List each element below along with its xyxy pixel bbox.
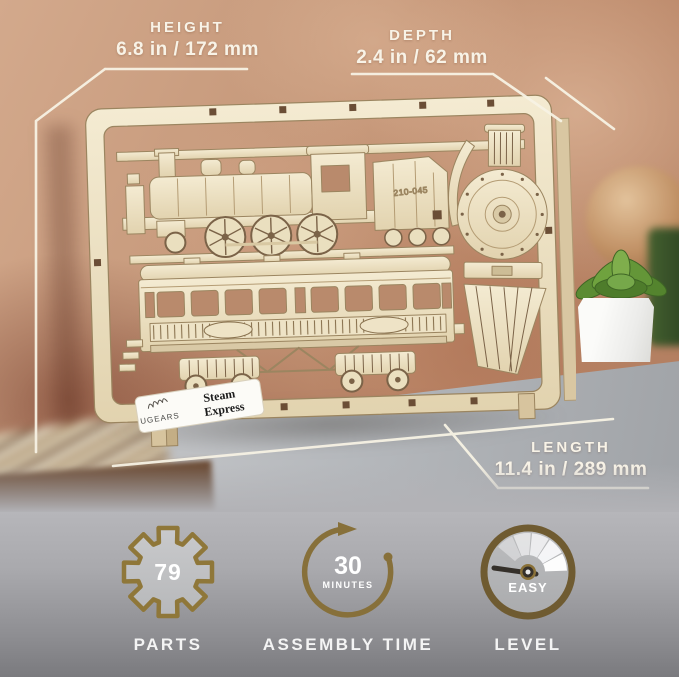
gauge-icon: EASY: [478, 522, 578, 622]
spec-level: EASY LEVEL: [438, 512, 618, 655]
depth-callout: DEPTH 2.4 in / 62 mm: [338, 26, 506, 70]
length-value: 11.4 in / 289 mm: [480, 458, 662, 482]
dimension-leader-lines: [0, 0, 679, 512]
length-label: LENGTH: [480, 438, 662, 458]
level-label: LEVEL: [494, 635, 561, 655]
product-photo-scene: 210-045: [0, 0, 679, 512]
spec-assembly-time: 30 MINUTES ASSEMBLY TIME: [258, 512, 438, 655]
parts-label: PARTS: [134, 635, 203, 655]
circular-arrow-icon: 30 MINUTES: [298, 522, 398, 622]
height-leader-line: [36, 69, 247, 452]
height-value: 6.8 in / 172 mm: [95, 38, 280, 62]
length-callout: LENGTH 11.4 in / 289 mm: [480, 438, 662, 482]
height-callout: HEIGHT 6.8 in / 172 mm: [95, 18, 280, 62]
depth-label: DEPTH: [338, 26, 506, 46]
gear-icon: 79: [118, 522, 218, 622]
depth-value: 2.4 in / 62 mm: [338, 46, 506, 70]
assembly-time-label: ASSEMBLY TIME: [263, 635, 433, 655]
product-infographic: 210-045: [0, 0, 679, 677]
specs-band: 79 PARTS 30 MINUTES ASSEMBLY TIME: [0, 512, 679, 677]
height-label: HEIGHT: [95, 18, 280, 38]
spec-parts: 79 PARTS: [78, 512, 258, 655]
depth-leader-line: [352, 74, 614, 129]
